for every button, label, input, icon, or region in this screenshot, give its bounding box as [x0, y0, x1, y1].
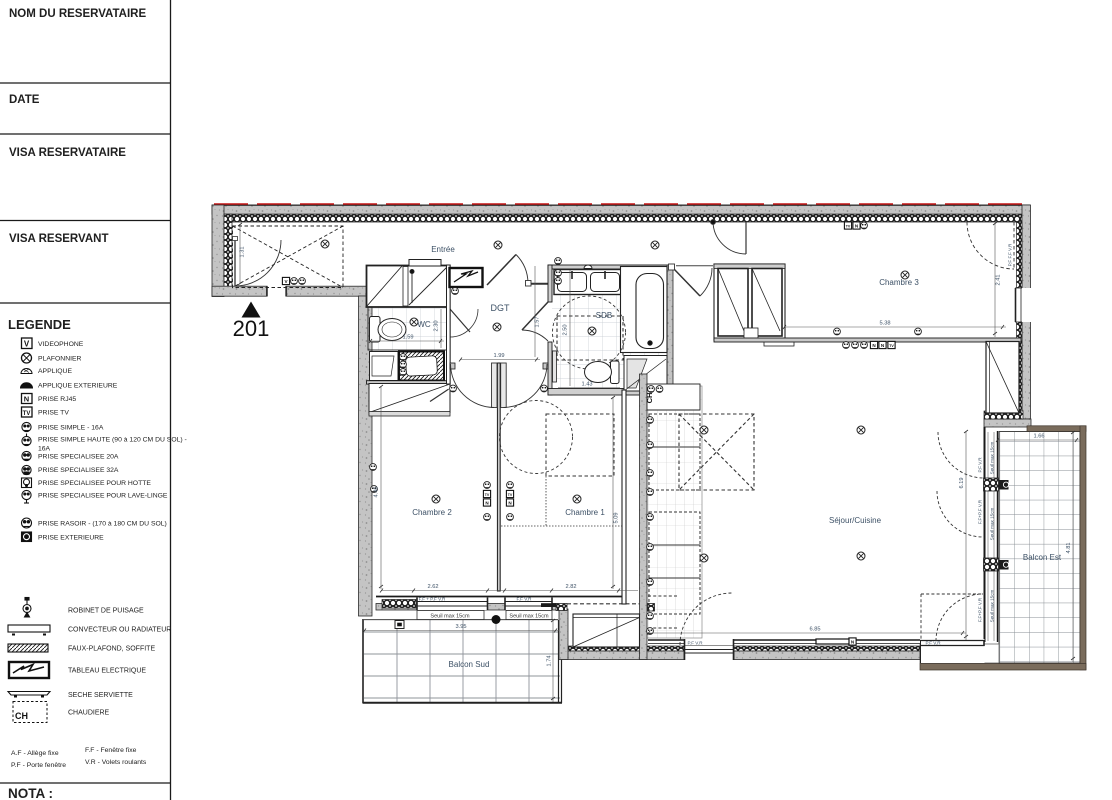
svg-text:TV: TV	[485, 493, 490, 497]
svg-text:4.81: 4.81	[1066, 542, 1072, 553]
svg-text:Seuil max 15cm: Seuil max 15cm	[990, 589, 995, 622]
svg-text:CHAUDIERE: CHAUDIERE	[68, 710, 110, 717]
svg-text:201: 201	[233, 316, 270, 341]
svg-text:A.F - Allège fixe: A.F - Allège fixe	[11, 750, 59, 757]
svg-text:P.F F.F V.R: P.F F.F V.R	[1008, 243, 1013, 266]
svg-text:5.09: 5.09	[614, 512, 620, 523]
svg-text:2.82: 2.82	[565, 584, 576, 590]
svg-text:N: N	[24, 395, 29, 404]
svg-text:PRISE SIMPLE HAUTE (90 à 120 C: PRISE SIMPLE HAUTE (90 à 120 CM DU SOL) …	[38, 437, 187, 444]
svg-text:VISA RESERVANT: VISA RESERVANT	[9, 233, 108, 245]
svg-text:Balcon Sud: Balcon Sud	[449, 660, 490, 669]
svg-text:3.95: 3.95	[455, 624, 466, 630]
svg-text:Chambre 3: Chambre 3	[879, 278, 919, 287]
svg-text:6.19: 6.19	[959, 477, 965, 488]
svg-text:Seuil max 15cm: Seuil max 15cm	[430, 613, 470, 619]
svg-text:PRISE SIMPLE - 16A: PRISE SIMPLE - 16A	[38, 425, 104, 432]
svg-text:FAUX-PLAFOND, SOFFITE: FAUX-PLAFOND, SOFFITE	[68, 646, 155, 653]
svg-text:PRISE RASOIR - (170 à 180 CM D: PRISE RASOIR - (170 à 180 CM DU SOL)	[38, 521, 167, 528]
svg-text:1.99: 1.99	[493, 353, 504, 359]
svg-text:TV: TV	[23, 411, 31, 417]
svg-text:F.F - Fenêtre fixe: F.F - Fenêtre fixe	[85, 747, 137, 754]
svg-text:Balcon Est: Balcon Est	[1023, 553, 1062, 562]
svg-text:F.F V.R: F.F V.R	[517, 597, 533, 602]
svg-text:Seuil max 15cm: Seuil max 15cm	[990, 507, 995, 540]
svg-text:APPLIQUE EXTERIEURE: APPLIQUE EXTERIEURE	[38, 383, 118, 390]
svg-text:NOM DU RESERVATAIRE: NOM DU RESERVATAIRE	[9, 8, 146, 20]
svg-text:PRISE RJ45: PRISE RJ45	[38, 396, 76, 403]
svg-text:2.50: 2.50	[563, 324, 569, 335]
svg-text:Seuil max 15cm: Seuil max 15cm	[990, 441, 995, 474]
svg-text:2.62: 2.62	[427, 584, 438, 590]
svg-text:F.F+P.F V.R: F.F+P.F V.R	[978, 597, 983, 622]
svg-text:TV: TV	[846, 224, 851, 228]
svg-text:P.F V.R: P.F V.R	[925, 641, 941, 646]
svg-text:1.59: 1.59	[402, 335, 413, 341]
svg-text:V.R - Volets roulants: V.R - Volets roulants	[85, 759, 147, 766]
svg-text:VISA RESERVATAIRE: VISA RESERVATAIRE	[9, 147, 126, 159]
svg-text:1.43: 1.43	[581, 382, 592, 388]
svg-text:APPLIQUE: APPLIQUE	[38, 368, 72, 375]
svg-text:Chambre 1: Chambre 1	[565, 508, 605, 517]
svg-text:16A: 16A	[38, 446, 51, 453]
svg-text:PRISE SPECIALISEE POUR HOTTE: PRISE SPECIALISEE POUR HOTTE	[38, 480, 151, 487]
svg-text:PRISE SPECIALISEE 32A: PRISE SPECIALISEE 32A	[38, 467, 119, 474]
svg-text:P.F - Porte fenêtre: P.F - Porte fenêtre	[11, 762, 66, 769]
svg-text:2.41: 2.41	[996, 274, 1002, 285]
svg-text:2.30: 2.30	[434, 320, 440, 331]
svg-text:6.85: 6.85	[809, 627, 820, 633]
svg-text:Seuil max 15cm: Seuil max 15cm	[509, 613, 549, 619]
svg-text:TABLEAU ELECTRIQUE: TABLEAU ELECTRIQUE	[68, 668, 146, 675]
svg-text:P.F V.R: P.F V.R	[687, 641, 703, 646]
svg-text:Entrée: Entrée	[431, 245, 455, 254]
svg-text:SDB: SDB	[596, 311, 612, 320]
svg-text:CH: CH	[645, 393, 654, 404]
svg-text:WC: WC	[417, 320, 431, 329]
svg-text:1.31: 1.31	[240, 246, 246, 257]
svg-text:PRISE TV: PRISE TV	[38, 410, 69, 417]
svg-text:PRISE SPECIALISEE 20A: PRISE SPECIALISEE 20A	[38, 454, 119, 461]
svg-text:1.74: 1.74	[547, 655, 553, 666]
svg-text:P.F V.R: P.F V.R	[978, 457, 983, 473]
svg-text:PLAFONNIER: PLAFONNIER	[38, 356, 82, 363]
svg-text:DGT: DGT	[491, 303, 511, 313]
svg-text:TV: TV	[508, 493, 513, 497]
svg-text:ROBINET DE PUISAGE: ROBINET DE PUISAGE	[68, 608, 144, 615]
svg-text:CONVECTEUR OU RADIATEUR: CONVECTEUR OU RADIATEUR	[68, 627, 171, 634]
svg-text:PRISE SPECIALISEE POUR LAVE-LI: PRISE SPECIALISEE POUR LAVE-LINGE	[38, 493, 168, 500]
svg-text:1.57: 1.57	[535, 316, 541, 327]
svg-text:V: V	[24, 340, 30, 349]
svg-text:CH: CH	[15, 711, 28, 721]
svg-text:F.F+P.F V.R: F.F+P.F V.R	[978, 499, 983, 524]
svg-text:NOTA :: NOTA :	[8, 786, 53, 800]
svg-text:TV: TV	[889, 344, 894, 348]
svg-text:DATE: DATE	[9, 94, 40, 106]
svg-text:1.66: 1.66	[1033, 434, 1044, 440]
svg-text:PRISE EXTERIEURE: PRISE EXTERIEURE	[38, 535, 104, 542]
svg-text:Chambre 2: Chambre 2	[412, 508, 452, 517]
svg-text:5.38: 5.38	[879, 321, 890, 327]
svg-text:4.46: 4.46	[374, 486, 380, 497]
svg-text:F.F + P.F V.R: F.F + P.F V.R	[419, 597, 446, 602]
svg-text:VIDEOPHONE: VIDEOPHONE	[38, 341, 84, 348]
svg-text:LEGENDE: LEGENDE	[8, 317, 71, 332]
svg-text:SECHE SERVIETTE: SECHE SERVIETTE	[68, 692, 133, 699]
svg-text:Séjour/Cuisine: Séjour/Cuisine	[829, 516, 882, 525]
